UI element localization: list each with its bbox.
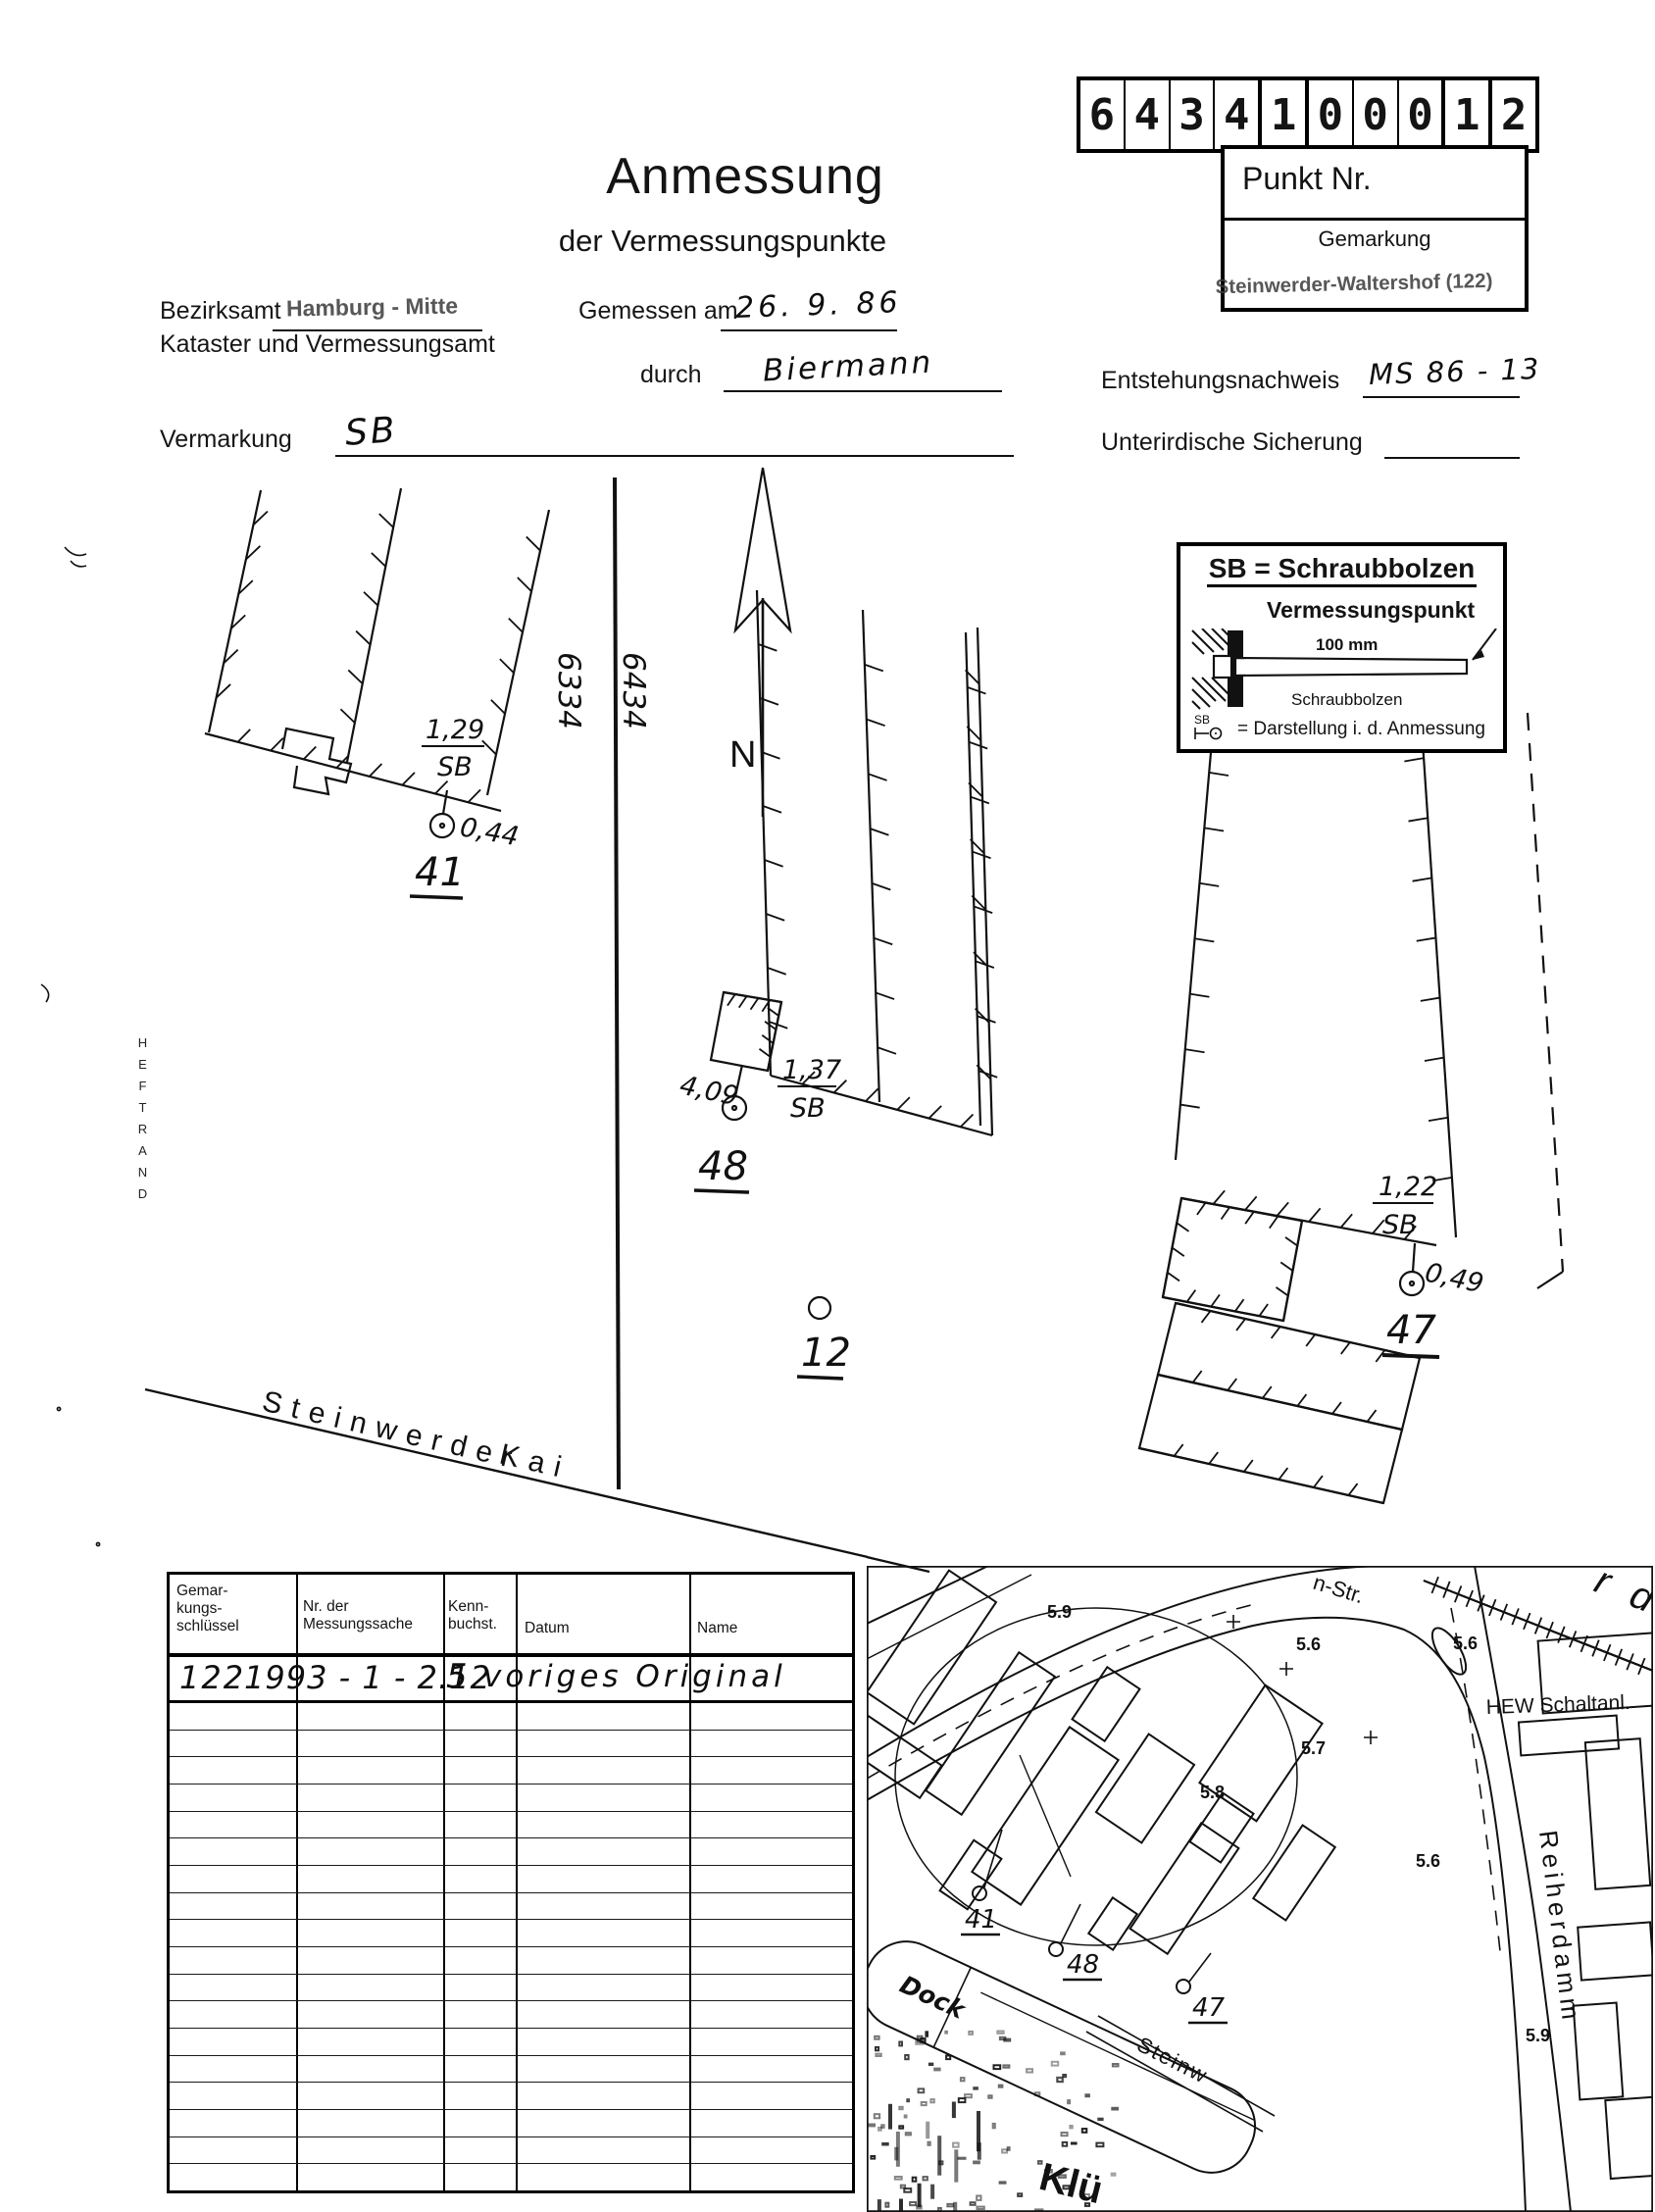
legend-explanation: = Darstellung i. d. Anmessung <box>1237 719 1485 740</box>
durch-underline <box>724 365 1002 392</box>
table-empty-row <box>170 1893 852 1921</box>
point-47-label: 47 <box>1386 1308 1436 1353</box>
cadastral-map: Dock n-Str. HEW Schaltanl. Reiherdamm r … <box>847 1559 1655 2212</box>
parcel-number-right: 6434 <box>616 652 651 729</box>
building-47 <box>1139 662 1563 1503</box>
building-48 <box>711 590 997 1135</box>
row-gemarkungsschluessel: 122 <box>179 1659 245 1696</box>
sicherung-underline <box>1384 431 1520 459</box>
hatch-ticks <box>1175 1444 1358 1495</box>
svg-text:5.9: 5.9 <box>1047 1602 1072 1622</box>
svg-text:5.8: 5.8 <box>1200 1783 1225 1802</box>
building-41 <box>205 488 549 811</box>
table-empty-row <box>170 2137 852 2165</box>
digit-cell: 1 <box>1441 80 1488 149</box>
marker-48: SB <box>790 1093 826 1124</box>
table-empty-row <box>170 1838 852 1866</box>
bezirksamt-underline <box>273 304 482 331</box>
table-empty-row <box>170 2083 852 2110</box>
map-hew-label: HEW Schaltanl. <box>1485 1691 1630 1719</box>
entstehungsnachweis-label: Entstehungsnachweis <box>1101 367 1339 395</box>
legend-vermessungspunkt-label: Vermessungspunkt <box>1267 597 1475 624</box>
point-12: 12 <box>797 1297 851 1379</box>
street-suffix: Kai <box>496 1438 574 1486</box>
digit-cell: 6 <box>1080 80 1124 149</box>
legend-dimension: 100 mm <box>1316 635 1378 654</box>
svg-text:5.6: 5.6 <box>1416 1851 1440 1871</box>
road-line <box>615 478 619 1489</box>
street-steinwerder-kai: Steinwerder Kai <box>145 1385 868 1557</box>
legend-symbol-label: SB <box>1194 713 1210 727</box>
hatch-ticks <box>217 512 268 698</box>
digit-cell: 0 <box>1352 80 1397 149</box>
anmessung-form-page: 6334 6434 N 1,29 SB <box>0 0 1655 2212</box>
heftrand-label: HEFTRAND <box>135 1035 150 1208</box>
digit-cell: 4 <box>1124 80 1169 149</box>
point-48-label: 48 <box>698 1144 748 1189</box>
map-elbe-fragment: r d e <box>1589 1559 1655 1641</box>
table-header-name: Name <box>697 1620 737 1637</box>
map-klu-label: Klü <box>1035 2155 1107 2212</box>
table-empty-row <box>170 1757 852 1785</box>
hatch-ticks <box>1197 1203 1278 1229</box>
gemessen-am-underline <box>721 304 897 331</box>
hatch-ticks <box>340 514 393 723</box>
table-empty-row <box>170 1703 852 1731</box>
svg-text:47: 47 <box>1192 1993 1226 2023</box>
svg-text:5.6: 5.6 <box>1453 1634 1478 1653</box>
gemessen-am-label: Gemessen am <box>578 297 738 326</box>
bolt-diagram: 100 mm Schraubbolzen <box>1188 628 1504 711</box>
table-empty-row <box>170 1975 852 2002</box>
street-name: Steinwerder <box>259 1385 525 1477</box>
hatch-ticks <box>1187 1290 1269 1317</box>
north-arrow-icon: N <box>729 468 790 817</box>
hatch-ticks <box>1201 1311 1384 1362</box>
marker-47: SB <box>1382 1210 1418 1240</box>
offset-47: 1,22 <box>1379 1172 1437 1202</box>
map-point-48: 48 <box>1049 1904 1102 1980</box>
table-empty-row <box>170 2029 852 2056</box>
legend-title: SB = Schraubbolzen <box>1207 553 1478 587</box>
vermarkung-underline <box>335 429 1014 457</box>
digit-cell: 3 <box>1169 80 1214 149</box>
digit-cell: 1 <box>1258 80 1305 149</box>
svg-text:41: 41 <box>965 1905 997 1935</box>
row-kennbuchstabe: 5 <box>446 1657 468 1696</box>
dock-label: Dock <box>895 1970 970 2025</box>
unterirdische-sicherung-label: Unterirdische Sicherung <box>1101 428 1363 457</box>
svg-text:5.6: 5.6 <box>1296 1634 1321 1654</box>
scan-artifacts <box>41 547 100 1546</box>
point-41: 1,29 SB 0,44 41 <box>410 715 521 898</box>
map-buildings-left <box>847 1571 1335 1954</box>
point-12-label: 12 <box>801 1331 851 1376</box>
table-empty-row <box>170 1731 852 1758</box>
table-header-messungssache: Nr. der Messungssache <box>303 1598 440 1634</box>
bezirksamt-label: Bezirksamt <box>160 297 281 326</box>
table-empty-row <box>170 1920 852 1947</box>
map-point-47: 47 <box>1177 1953 1228 2023</box>
point-47: 1,22 SB 0,49 47 <box>1373 1172 1486 1357</box>
measurement-table: Gemar- kungs- schlüssel Nr. der Messungs… <box>167 1572 855 2193</box>
kai-line-over-map <box>867 1557 929 1572</box>
distance-41: 0,44 <box>458 812 522 852</box>
digit-cell: 0 <box>1305 80 1352 149</box>
hatch-ticks <box>1193 1371 1377 1422</box>
table-empty-row <box>170 1812 852 1839</box>
hatch-ticks <box>1180 717 1233 1107</box>
table-empty-row <box>170 1947 852 1975</box>
north-label: N <box>729 734 756 776</box>
table-empty-row <box>170 1785 852 1812</box>
table-empty-row <box>170 2056 852 2084</box>
gemarkung-label: Gemarkung <box>1225 221 1525 252</box>
offset-41: 1,29 <box>426 715 484 745</box>
distance-48: 4,09 <box>677 1071 741 1113</box>
hatch-ticks <box>482 536 540 754</box>
digit-cell: 2 <box>1488 80 1535 149</box>
point-number-boxes: 6 4 3 4 1 0 0 0 1 2 <box>1077 76 1539 153</box>
table-empty-row <box>170 2164 852 2190</box>
marker-41: SB <box>437 752 473 782</box>
table-header-gemarkungsschluessel: Gemar- kungs- schlüssel <box>176 1583 292 1635</box>
punkt-nr-label: Punkt Nr. <box>1225 149 1525 218</box>
table-header-kennbuchstabe: Kenn- buchst. <box>448 1598 513 1634</box>
parcel-number-left: 6334 <box>551 652 586 729</box>
vermarkung-label: Vermarkung <box>160 426 292 454</box>
distance-47: 0,49 <box>1423 1258 1486 1300</box>
legend-bolt-label: Schraubbolzen <box>1291 690 1402 709</box>
dock-outline <box>849 1928 1269 2186</box>
digit-cell: 0 <box>1397 80 1442 149</box>
row-note: voriges Original <box>483 1659 786 1694</box>
legend-box: SB = Schraubbolzen Vermessungspunkt 100 … <box>1177 542 1507 753</box>
table-empty-row <box>170 1866 852 1893</box>
table-header-divider <box>170 1653 852 1657</box>
svg-text:5.7: 5.7 <box>1301 1738 1326 1758</box>
sb-symbol-icon: SB <box>1192 713 1231 744</box>
point-48: 4,09 1,37 SB 48 <box>677 1055 842 1192</box>
table-header-datum: Datum <box>525 1620 570 1637</box>
page-title: Anmessung <box>549 147 941 206</box>
map-street-fragment: n-Str. <box>1311 1570 1368 1608</box>
kataster-label: Kataster und Vermessungsamt <box>160 330 495 359</box>
svg-text:48: 48 <box>1067 1950 1099 1980</box>
digit-cell: 4 <box>1213 80 1258 149</box>
durch-label: durch <box>640 361 702 389</box>
point-41-label: 41 <box>415 850 465 895</box>
hatch-ticks <box>968 687 998 1078</box>
table-empty-row <box>170 2001 852 2029</box>
hatch-ticks <box>865 665 896 1054</box>
table-empty-rows <box>170 1703 852 2190</box>
svg-text:5.9: 5.9 <box>1526 2026 1550 2045</box>
table-empty-row <box>170 2110 852 2137</box>
offset-48: 1,37 <box>782 1055 841 1085</box>
entstehungsnachweis-underline <box>1363 371 1520 398</box>
page-subtitle: der Vermessungspunkte <box>546 224 899 259</box>
